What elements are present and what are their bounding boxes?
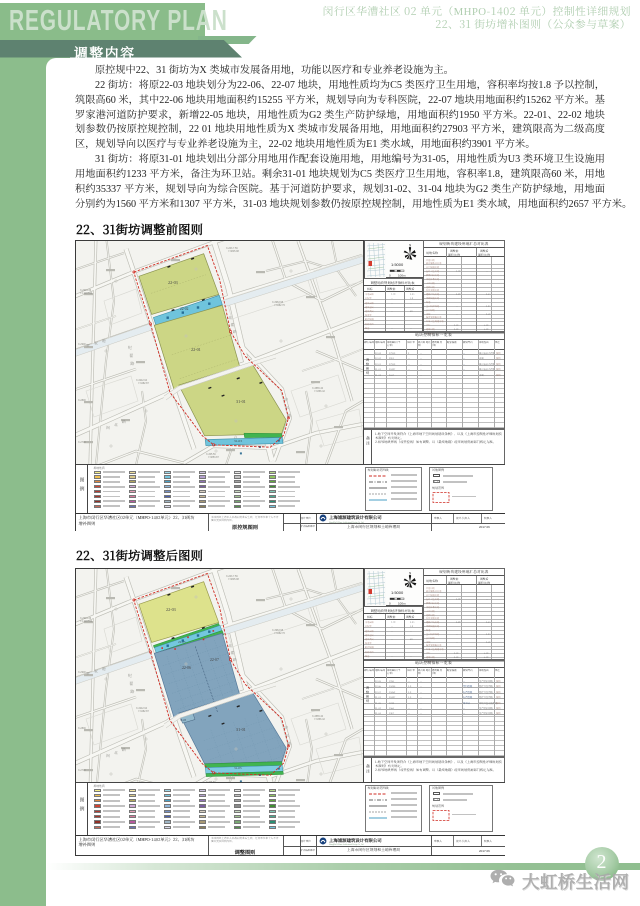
svg-text:31-03: 31-03 xyxy=(234,439,242,443)
svg-text:长: 长 xyxy=(286,733,290,738)
svg-text:闵: 闵 xyxy=(106,753,110,758)
svg-text:申: 申 xyxy=(284,397,288,402)
svg-text:北: 北 xyxy=(114,422,118,427)
svg-text:家: 家 xyxy=(94,668,98,673)
svg-text:22-02: 22-02 xyxy=(180,307,189,311)
svg-text:Y-13467.00: Y-13467.00 xyxy=(80,619,93,622)
svg-text:Y-3482.76: Y-3482.76 xyxy=(274,631,285,634)
svg-text:北: 北 xyxy=(228,315,232,320)
svg-text:X-2700: X-2700 xyxy=(78,441,86,444)
svg-text:纪: 纪 xyxy=(128,345,132,350)
svg-text:X-2700: X-2700 xyxy=(78,769,86,772)
svg-text:Y-3853.87: Y-3853.87 xyxy=(208,455,219,458)
svg-text:翟: 翟 xyxy=(231,322,235,327)
svg-text:31-01: 31-01 xyxy=(236,727,246,732)
svg-text:Y-3366.42: Y-3366.42 xyxy=(314,389,325,392)
svg-text:X-2800: X-2800 xyxy=(78,727,86,730)
svg-text:1:5000: 1:5000 xyxy=(391,262,404,267)
svg-text:Y-3845.98: Y-3845.98 xyxy=(228,577,239,580)
svg-text:22-03: 22-03 xyxy=(166,607,176,612)
svg-text:Y-3366.42: Y-3366.42 xyxy=(314,717,325,720)
svg-text:100m: 100m xyxy=(398,274,406,278)
svg-text:31-05: 31-05 xyxy=(180,719,187,722)
svg-text:Y-3482.87: Y-3482.87 xyxy=(138,709,149,712)
svg-text:22-01: 22-01 xyxy=(191,347,201,352)
svg-text:路: 路 xyxy=(233,329,237,334)
svg-text:北: 北 xyxy=(114,750,118,755)
svg-text:路: 路 xyxy=(130,689,134,694)
svg-text:纪: 纪 xyxy=(128,673,132,678)
svg-text:0: 0 xyxy=(389,274,391,278)
svg-text:0: 0 xyxy=(389,602,391,606)
svg-text:路: 路 xyxy=(130,361,134,366)
svg-text:路: 路 xyxy=(122,747,126,752)
svg-text:31-03: 31-03 xyxy=(234,766,242,770)
svg-text:翟: 翟 xyxy=(129,681,133,686)
svg-text:港: 港 xyxy=(102,338,106,343)
svg-text:X-2800: X-2800 xyxy=(78,399,86,402)
svg-text:1:5000: 1:5000 xyxy=(391,590,404,595)
svg-text:路: 路 xyxy=(287,413,291,418)
svg-text:N: N xyxy=(409,243,411,247)
svg-text:22-06: 22-06 xyxy=(182,666,191,670)
svg-text:N: N xyxy=(409,571,411,575)
svg-text:闵: 闵 xyxy=(106,425,110,430)
svg-text:翟: 翟 xyxy=(231,650,235,655)
svg-text:北: 北 xyxy=(228,643,232,648)
svg-text:31-01: 31-01 xyxy=(236,399,246,404)
svg-text:家: 家 xyxy=(94,340,98,345)
svg-text:罗: 罗 xyxy=(86,671,90,676)
svg-text:罗: 罗 xyxy=(86,343,90,348)
svg-text:Y-3845.98: Y-3845.98 xyxy=(228,249,239,252)
svg-text:Y-13467.00: Y-13467.00 xyxy=(80,291,93,294)
svg-text:Y-3482.87: Y-3482.87 xyxy=(138,381,149,384)
svg-text:22-07: 22-07 xyxy=(210,658,219,662)
svg-text:申: 申 xyxy=(284,725,288,730)
svg-text:路: 路 xyxy=(287,741,291,746)
svg-text:Y-3482.76: Y-3482.76 xyxy=(274,303,285,306)
svg-text:港: 港 xyxy=(102,666,106,671)
svg-text:100m: 100m xyxy=(398,602,406,606)
svg-text:22-03: 22-03 xyxy=(168,280,178,285)
svg-text:路: 路 xyxy=(122,419,126,424)
svg-text:长: 长 xyxy=(286,405,290,410)
svg-text:路: 路 xyxy=(233,657,237,662)
svg-text:翟: 翟 xyxy=(129,353,133,358)
